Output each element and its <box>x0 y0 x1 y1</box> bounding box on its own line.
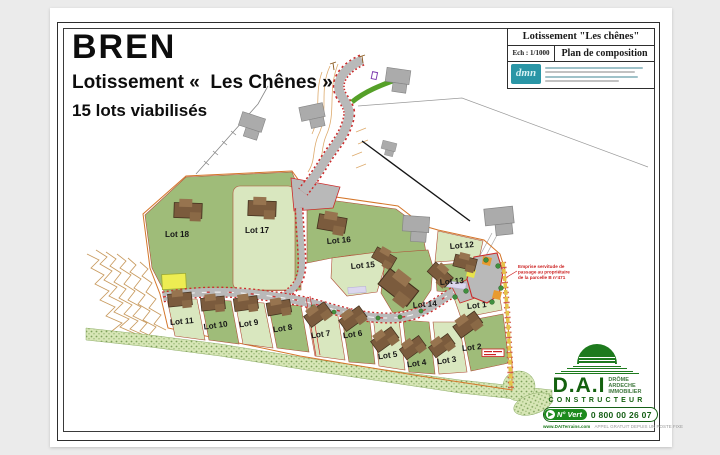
lots-count-line: 15 lots viabilisés <box>72 101 333 121</box>
dai-call-note: APPEL GRATUIT DEPUIS UN POSTE FIXE <box>595 424 683 429</box>
screenshot-stage: Lot 1 Lot 2 Lot 3 Lot 4 Lot 5 Lot 6 Lot … <box>0 0 720 455</box>
scale-label: Ech : 1/1000 <box>508 46 555 61</box>
green-number-badge: ▶ N° Vert 0 800 00 26 07 <box>543 407 658 422</box>
dai-dome-icon <box>577 344 617 364</box>
title-block: Lotissement "Les chênes" Ech : 1/1000 Pl… <box>507 28 655 89</box>
dai-region-lines: DRÔME ARDECHE IMMOBILIER <box>608 377 641 395</box>
surveyor-logo: dmn <box>511 64 541 84</box>
plan-header: BREN Lotissement « Les Chênes » 15 lots … <box>72 30 333 121</box>
servitude-line: de la parcelle B n°471 <box>518 275 566 280</box>
title-block-title: Lotissement "Les chênes" <box>508 29 654 46</box>
lot-label: Lot 17 <box>245 226 270 235</box>
servitude-line: passage au propriétaire <box>518 270 570 275</box>
dai-name: D.A.I <box>553 376 606 396</box>
svg-text:Emprise servitude de p: Emprise servitude de passage au propriét… <box>518 264 571 280</box>
lot-label: Lot 18 <box>165 230 190 239</box>
dai-role: CONSTRUCTEUR <box>543 397 651 404</box>
dai-branding: D.A.I DRÔME ARDECHE IMMOBILIER CONSTRUCT… <box>543 344 651 429</box>
cartouche-smallprint <box>545 64 651 85</box>
dai-fan-lines <box>543 366 651 375</box>
play-arrow-icon: ▶ <box>546 410 555 419</box>
subdivision-title: Lotissement « Les Chênes » <box>72 72 333 94</box>
green-number-label: N° Vert <box>557 410 582 419</box>
small-red-label <box>482 349 504 357</box>
green-number: 0 800 00 26 07 <box>587 410 656 420</box>
yellow-plot <box>162 273 187 289</box>
city-title: BREN <box>72 30 333 64</box>
dai-website: www.DAITerrains.com <box>543 424 590 429</box>
servitude-line: Emprise servitude de <box>518 264 565 269</box>
dai-footline: www.DAITerrains.com APPEL GRATUIT DEPUIS… <box>543 424 651 429</box>
plan-type-label: Plan de composition <box>555 46 654 61</box>
